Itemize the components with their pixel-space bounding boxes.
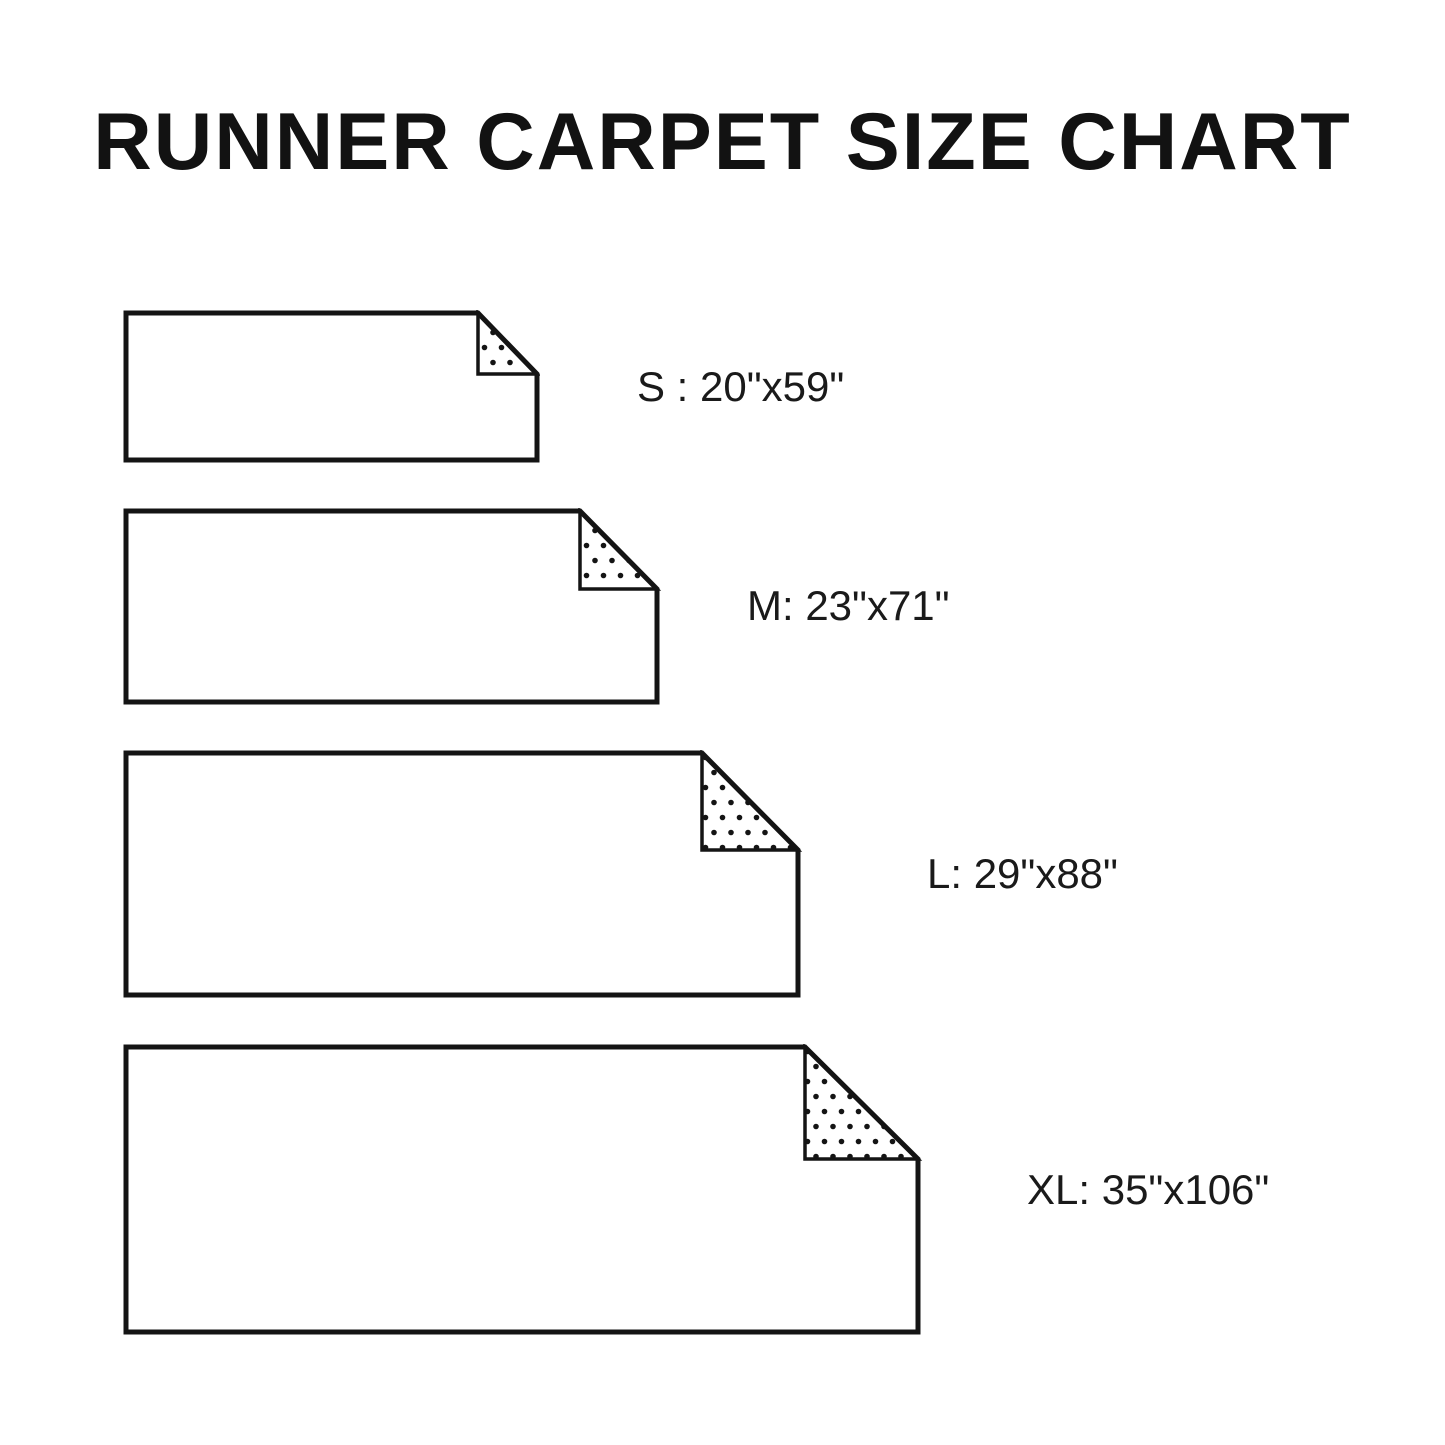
carpet-s-folded-corner <box>478 313 537 374</box>
carpet-s-outline <box>126 313 537 460</box>
carpet-l-diagram <box>123 750 804 1001</box>
runner-carpet-size-chart: RUNNER CARPET SIZE CHART S : 20"x59" M: … <box>0 0 1445 1445</box>
carpet-m-outline <box>126 511 657 702</box>
page-title: RUNNER CARPET SIZE CHART <box>0 96 1445 189</box>
carpet-m-folded-corner <box>580 511 657 589</box>
size-label-xl: XL: 35"x106" <box>1027 1166 1269 1214</box>
carpet-l-outline <box>126 753 798 995</box>
size-label-m: M: 23"x71" <box>747 582 950 630</box>
carpet-xl-outline <box>126 1047 918 1332</box>
carpet-m-diagram <box>123 508 663 708</box>
carpet-xl-diagram <box>123 1044 924 1338</box>
carpet-l-folded-corner <box>702 753 798 850</box>
size-label-s: S : 20"x59" <box>637 363 844 411</box>
carpet-s-diagram <box>123 310 540 463</box>
size-label-l: L: 29"x88" <box>927 850 1118 898</box>
carpet-xl-folded-corner <box>805 1047 918 1159</box>
